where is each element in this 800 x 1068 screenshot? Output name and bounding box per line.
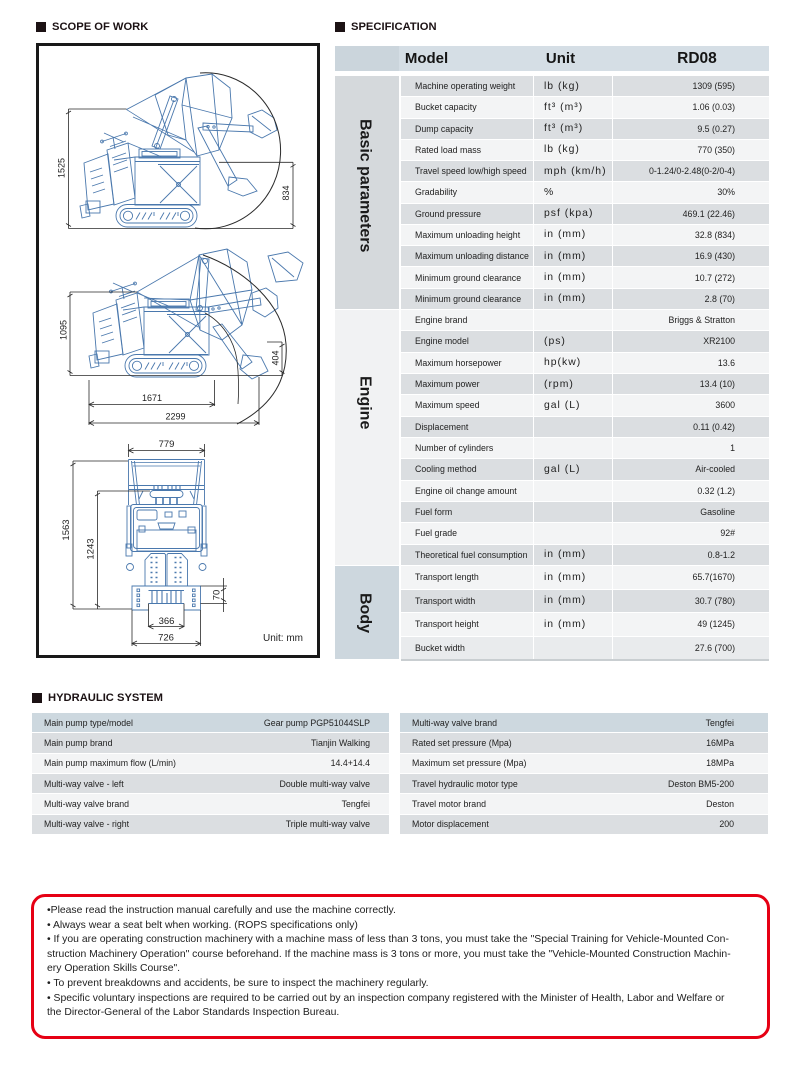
svg-text:Unit: mm: Unit: mm (263, 633, 303, 644)
svg-text:404: 404 (271, 350, 281, 365)
svg-text:834: 834 (281, 185, 291, 200)
svg-text:726: 726 (158, 633, 174, 644)
svg-text:1525: 1525 (57, 158, 67, 178)
svg-text:366: 366 (159, 616, 175, 627)
svg-text:1671: 1671 (142, 393, 162, 403)
svg-text:2299: 2299 (165, 412, 185, 422)
svg-text:1243: 1243 (86, 538, 97, 559)
svg-text:1563: 1563 (61, 519, 72, 540)
svg-text:1095: 1095 (59, 320, 69, 340)
svg-text:70: 70 (212, 590, 223, 601)
svg-text:779: 779 (159, 439, 175, 450)
